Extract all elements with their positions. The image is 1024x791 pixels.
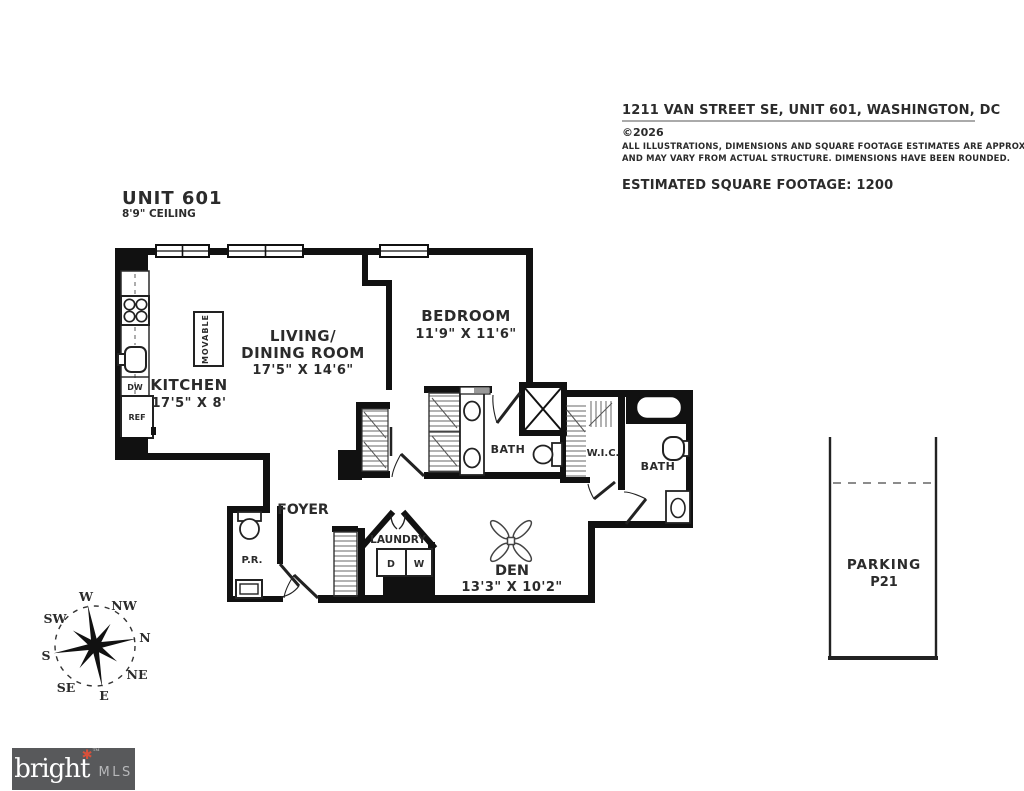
sink-icon-bath2 — [663, 437, 689, 460]
brand-name: bright — [14, 754, 89, 784]
window-icon-3 — [380, 245, 428, 257]
compass-label-nw: NW — [111, 598, 137, 613]
brand-wordmark: bright✱TM — [14, 756, 89, 782]
sink-icon-pr — [236, 580, 262, 598]
vanity-double-sink — [460, 387, 490, 475]
room-label-kitchen: KITCHEN — [150, 376, 227, 394]
parking-space-number: P21 — [870, 575, 898, 590]
movable-island-label: MOVABLE — [201, 314, 210, 364]
compass-label-e: E — [99, 688, 109, 703]
sink-icon — [464, 449, 480, 468]
mls-label: MLS — [99, 765, 133, 780]
floor-plan-svg: W NW N NE E SE S SW 1211 VAN STREET SE, … — [0, 0, 1024, 791]
shaft-x-icon — [522, 385, 564, 433]
room-label-living-2: DINING ROOM — [241, 344, 365, 362]
window-icons — [156, 245, 428, 257]
compass-label-ne: NE — [127, 667, 148, 682]
compass-label-se: SE — [57, 680, 76, 695]
window-icon-1 — [156, 245, 209, 257]
room-label-bedroom: BEDROOM — [421, 307, 511, 325]
room-label-bath-2: BATH — [641, 460, 676, 473]
compass-label-sw: SW — [43, 611, 67, 626]
room-label-laundry: LAUNDRY — [370, 534, 426, 546]
washer-label: W — [414, 559, 425, 570]
compass-label-s: S — [41, 648, 50, 663]
unit-title: UNIT 601 — [122, 188, 223, 209]
estimated-sqft: ESTIMATED SQUARE FOOTAGE: 1200 — [622, 178, 893, 193]
compass-label-w: W — [78, 589, 94, 604]
toilet-icon-pr — [238, 512, 261, 539]
parking-stall — [828, 437, 938, 659]
compass-rose: W NW N NE E SE S SW — [41, 589, 150, 703]
floor-plan-page: W NW N NE E SE S SW 1211 VAN STREET SE, … — [0, 0, 1024, 791]
copyright-year: ©2026 — [622, 126, 664, 139]
fridge-label: REF — [128, 413, 145, 422]
address-title: 1211 VAN STREET SE, UNIT 601, WASHINGTON… — [622, 103, 1000, 118]
room-label-wic: W.I.C. — [587, 448, 620, 459]
toilet-icon-bath2 — [666, 491, 690, 523]
dishwasher-label: DW — [127, 383, 143, 392]
dryer-label: D — [387, 559, 395, 570]
disclaimer-line-2: AND MAY VARY FROM ACTUAL STRUCTURE. DIME… — [622, 153, 1010, 163]
ceiling-height: 8'9" CEILING — [122, 208, 196, 220]
toilet-icon-bath1 — [534, 443, 563, 466]
dim-label-den: 13'3" X 10'2" — [461, 580, 562, 595]
hall-closet — [362, 409, 391, 471]
room-label-pr: P.R. — [242, 555, 263, 566]
bedroom-closet — [429, 393, 460, 472]
ceiling-fan-icon — [488, 518, 534, 564]
header-block: 1211 VAN STREET SE, UNIT 601, WASHINGTON… — [622, 103, 1024, 193]
brightmls-logo: bright✱TM MLS — [12, 748, 135, 790]
trademark-label: TM — [93, 748, 100, 752]
room-label-foyer: FOYER — [277, 502, 329, 518]
star-icon: ✱ — [82, 749, 93, 762]
sink-icon — [464, 402, 480, 421]
bathtub-icon — [636, 396, 682, 419]
disclaimer-line-1: ALL ILLUSTRATIONS, DIMENSIONS AND SQUARE… — [622, 141, 1024, 151]
window-icon-2 — [228, 245, 303, 257]
compass-label-n: N — [139, 630, 150, 645]
room-label-living-1: LIVING/ — [270, 327, 336, 345]
room-label-den: DEN — [495, 563, 529, 579]
parking-label: PARKING — [847, 557, 921, 573]
stove-icon — [121, 296, 149, 325]
wic-shelving — [566, 401, 613, 477]
fridge-icon — [118, 396, 156, 460]
foyer-closet — [334, 532, 357, 596]
room-label-bath-1: BATH — [491, 443, 526, 456]
dim-label-bedroom: 11'9" X 11'6" — [415, 327, 516, 342]
dim-label-kitchen: 17'5" X 8' — [152, 396, 227, 411]
dim-label-living: 17'5" X 14'6" — [252, 363, 353, 378]
